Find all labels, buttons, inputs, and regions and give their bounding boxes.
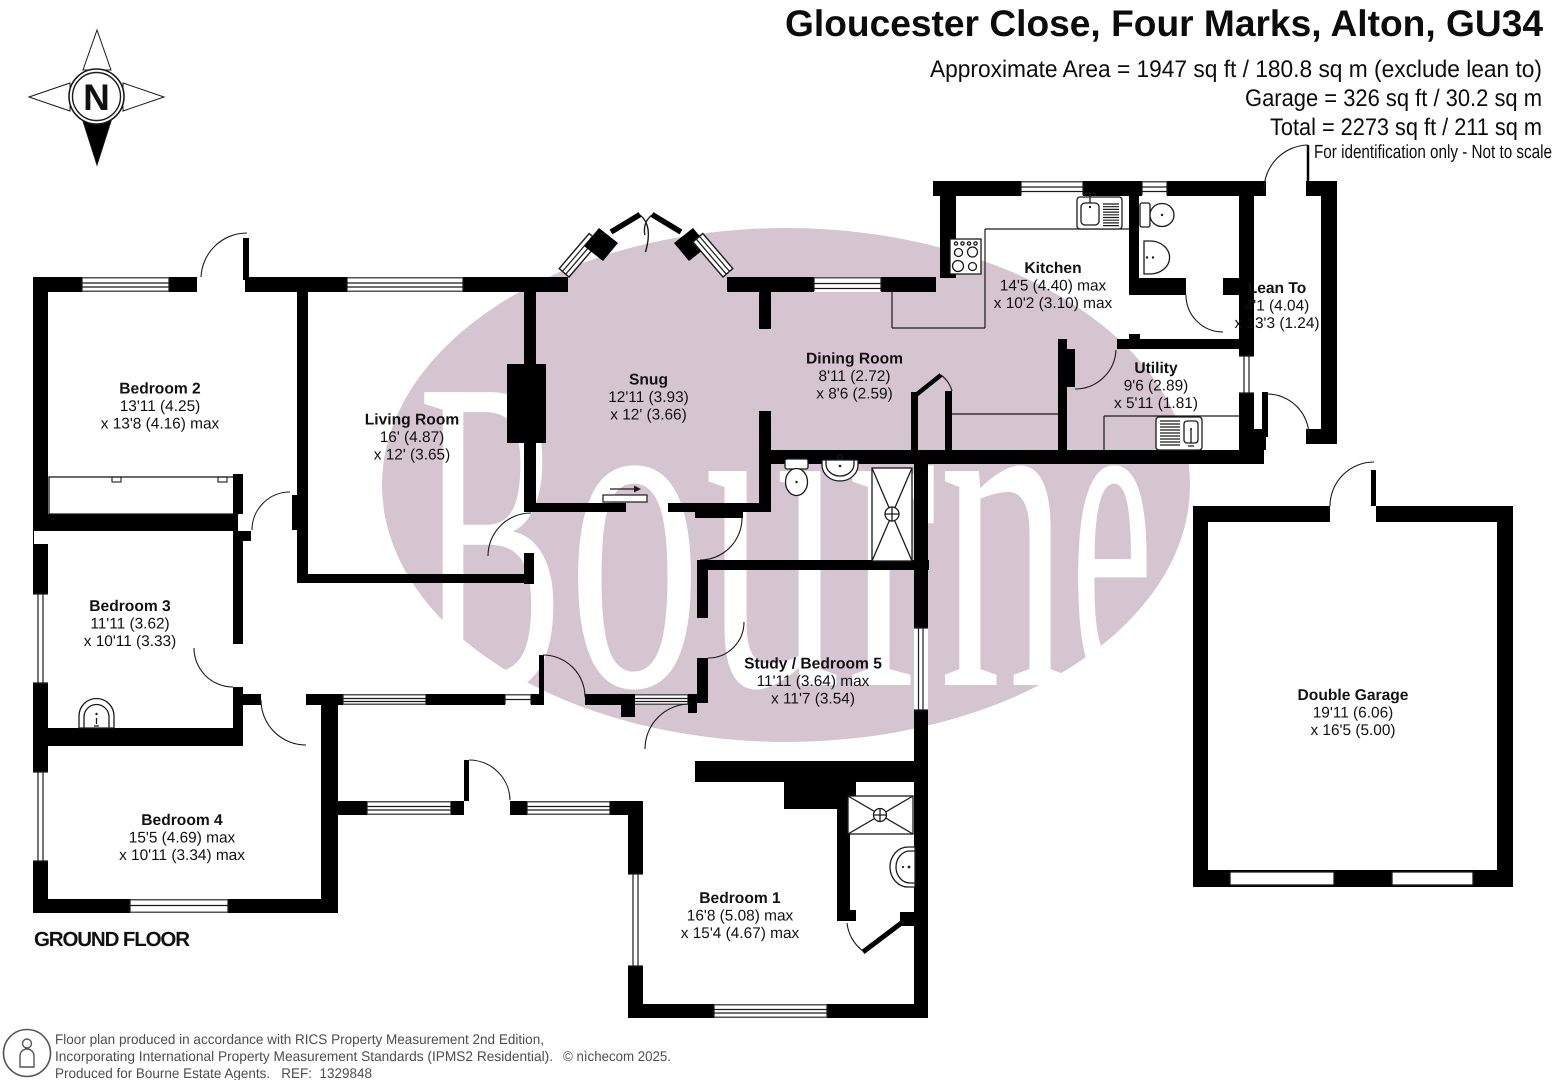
svg-text:x 8'6 (2.59): x 8'6 (2.59)	[816, 386, 893, 403]
svg-text:x 10'11 (3.34) max: x 10'11 (3.34) max	[119, 847, 245, 864]
svg-text:Produced for Bourne Estate Age: Produced for Bourne Estate Agents. REF: …	[55, 1065, 372, 1080]
svg-text:Double Garage: Double Garage	[1298, 687, 1409, 704]
svg-text:Snug: Snug	[629, 372, 668, 389]
svg-text:Bedroom 2: Bedroom 2	[119, 381, 201, 398]
svg-text:Dining Room: Dining Room	[806, 351, 903, 368]
svg-text:© nìchecom 2025.: © nìchecom 2025.	[563, 1048, 671, 1064]
svg-text:Study / Bedroom 5: Study / Bedroom 5	[744, 656, 882, 673]
svg-text:Bedroom 4: Bedroom 4	[141, 812, 223, 829]
svg-text:x 15'4 (4.67) max: x 15'4 (4.67) max	[681, 925, 800, 942]
svg-text:19'11 (6.06): 19'11 (6.06)	[1313, 705, 1394, 722]
svg-text:Total = 2273 sq ft / 211 sq m: Total = 2273 sq ft / 211 sq m	[1270, 114, 1542, 141]
svg-text:14'5 (4.40) max: 14'5 (4.40) max	[1000, 278, 1107, 295]
svg-text:Kitchen: Kitchen	[1024, 260, 1081, 277]
svg-text:x 12' (3.66): x 12' (3.66)	[610, 407, 687, 424]
svg-text:13'11 (4.25): 13'11 (4.25)	[120, 398, 201, 415]
svg-text:12'11 (3.93): 12'11 (3.93)	[608, 389, 689, 406]
svg-text:Bedroom 1: Bedroom 1	[699, 890, 781, 907]
svg-text:8'11 (2.72): 8'11 (2.72)	[819, 368, 891, 385]
svg-text:9'6 (2.89): 9'6 (2.89)	[1124, 378, 1189, 395]
svg-text:Utility: Utility	[1134, 360, 1178, 377]
svg-text:u: u	[705, 270, 841, 786]
svg-text:4'1 (4.04): 4'1 (4.04)	[1245, 298, 1310, 315]
svg-text:Lean To: Lean To	[1248, 280, 1307, 297]
svg-text:Garage = 326 sq ft / 30.2 sq m: Garage = 326 sq ft / 30.2 sq m	[1245, 85, 1542, 112]
svg-text:GROUND FLOOR: GROUND FLOOR	[34, 928, 190, 951]
svg-text:16'8 (5.08) max: 16'8 (5.08) max	[687, 908, 794, 925]
svg-text:x 12' (3.65): x 12' (3.65)	[374, 447, 451, 464]
svg-text:n: n	[939, 270, 1069, 786]
svg-text:Gloucester Close, Four Marks,: Gloucester Close, Four Marks, Alton, GU3…	[785, 3, 1543, 44]
svg-text:Incorporating International Pr: Incorporating International Property Mea…	[55, 1048, 553, 1064]
svg-text:B: B	[418, 286, 564, 789]
svg-text:Approximate Area = 1947 sq ft: Approximate Area = 1947 sq ft / 180.8 sq…	[930, 56, 1542, 83]
svg-text:x 16'5 (5.00): x 16'5 (5.00)	[1310, 722, 1395, 739]
svg-text:x 13'8 (4.16) max: x 13'8 (4.16) max	[101, 416, 220, 433]
svg-text:11'11 (3.64) max: 11'11 (3.64) max	[757, 673, 870, 690]
svg-text:N: N	[83, 77, 110, 118]
svg-text:Floor plan produced in accorda: Floor plan produced in accordance with R…	[55, 1031, 544, 1047]
svg-text:x 10'11 (3.33): x 10'11 (3.33)	[84, 633, 177, 650]
svg-text:Living Room: Living Room	[365, 412, 459, 429]
svg-text:x 5'11 (1.81): x 5'11 (1.81)	[1114, 395, 1198, 412]
svg-text:Bedroom 3: Bedroom 3	[89, 598, 171, 615]
svg-text:x 11'7 (3.54): x 11'7 (3.54)	[771, 691, 855, 708]
svg-text:15'5 (4.69) max: 15'5 (4.69) max	[129, 830, 236, 847]
svg-text:16' (4.87): 16' (4.87)	[380, 429, 445, 446]
svg-text:x 13'3 (1.24): x 13'3 (1.24)	[1234, 315, 1319, 332]
svg-text:11'11 (3.62): 11'11 (3.62)	[90, 616, 169, 633]
svg-text:For identification only - Not: For identification only - Not to scale	[1314, 142, 1552, 163]
svg-text:x 10'2 (3.10) max: x 10'2 (3.10) max	[994, 295, 1113, 312]
